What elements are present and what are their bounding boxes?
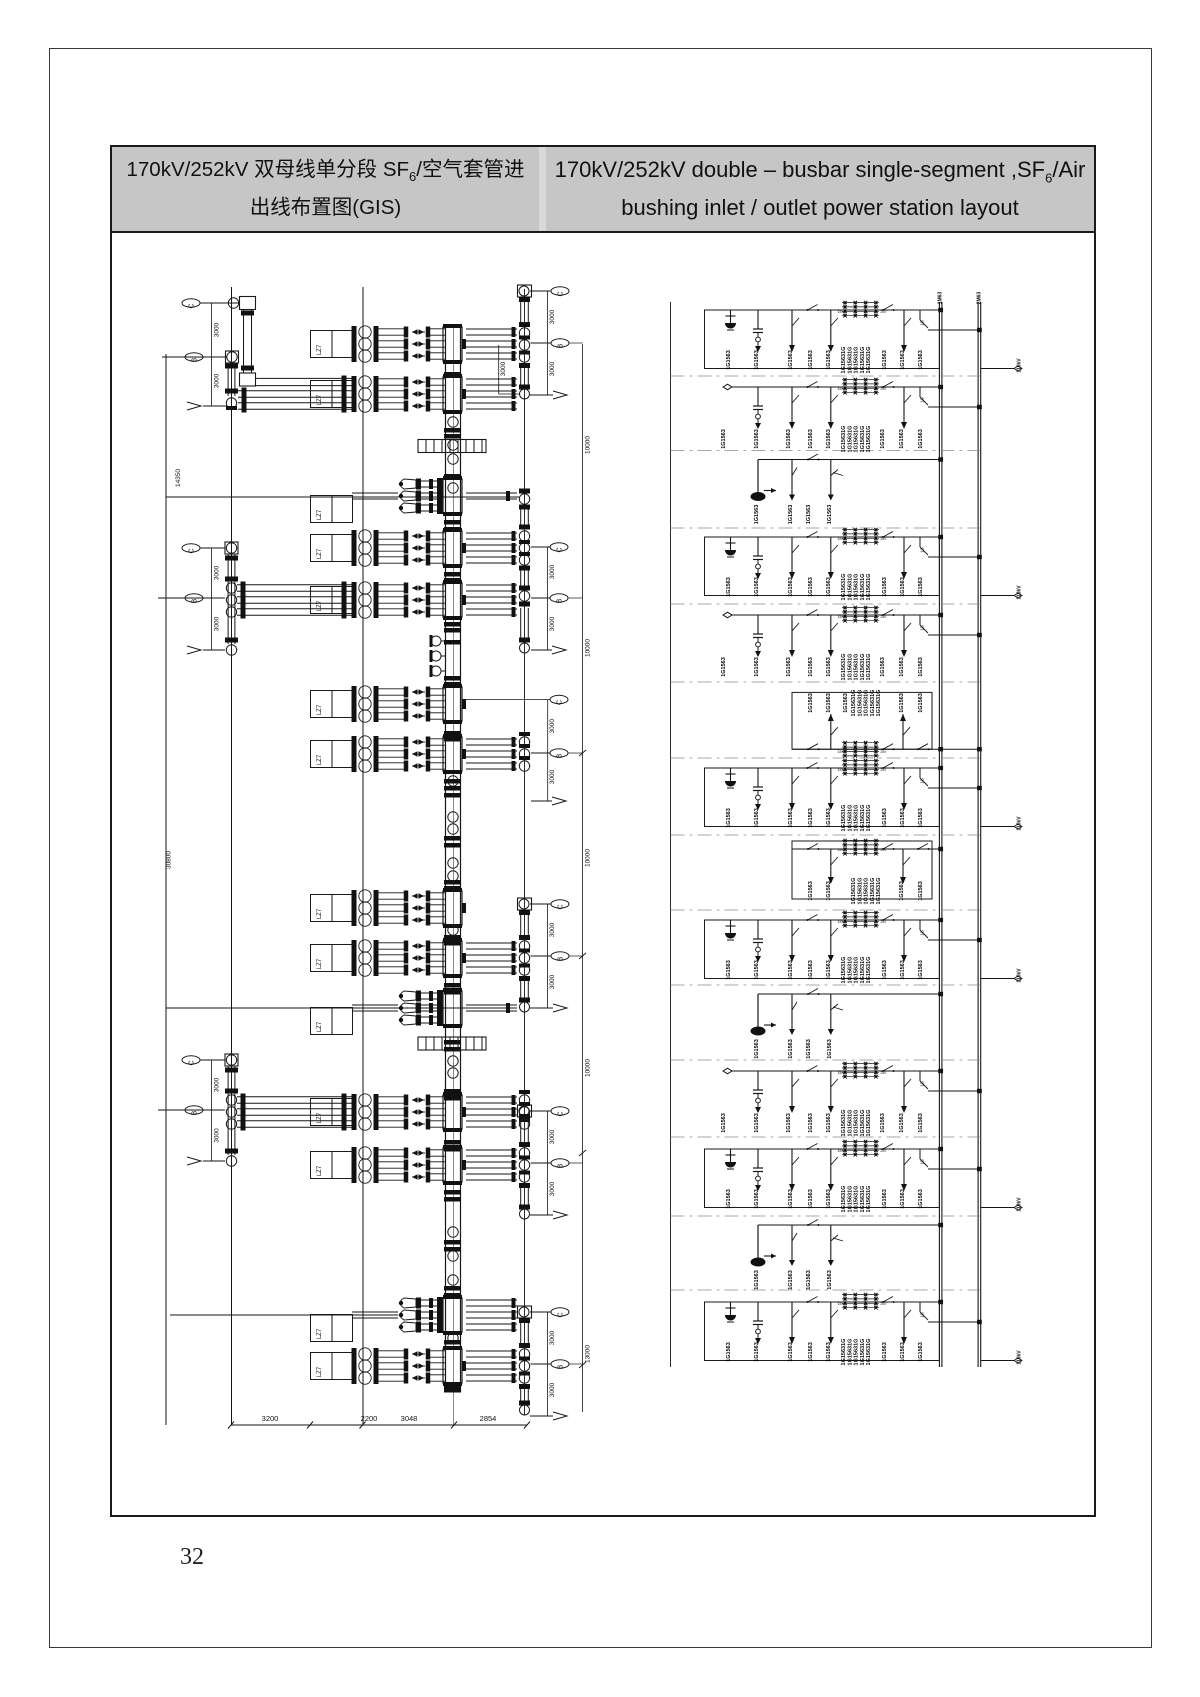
svg-text:1G15631G: 1G15631G bbox=[866, 654, 872, 681]
svg-text:1G15631G: 1G15631G bbox=[860, 1110, 866, 1137]
svg-text:1G1563: 1G1563 bbox=[754, 1342, 760, 1362]
svg-text:LZ7: LZ7 bbox=[317, 908, 323, 919]
svg-text:1G1563: 1G1563 bbox=[788, 808, 794, 828]
svg-text:1G1563: 1G1563 bbox=[754, 808, 760, 828]
svg-text:1M: 1M bbox=[837, 387, 842, 391]
svg-text:1G1563: 1G1563 bbox=[788, 1270, 794, 1290]
svg-text:1G1563: 1G1563 bbox=[754, 577, 760, 597]
svg-text:1G1563: 1G1563 bbox=[754, 1113, 760, 1133]
svg-text:1G1563: 1G1563 bbox=[826, 881, 832, 901]
svg-text:1G1563: 1G1563 bbox=[726, 577, 732, 597]
svg-text:LZ7: LZ7 bbox=[317, 1165, 323, 1176]
svg-text:1G1563: 1G1563 bbox=[899, 429, 905, 449]
svg-text:1G1563: 1G1563 bbox=[786, 429, 792, 449]
svg-text:1G1563: 1G1563 bbox=[880, 657, 886, 677]
svg-text:1G15631G: 1G15631G bbox=[841, 805, 847, 832]
svg-text:10000: 10000 bbox=[585, 1059, 592, 1077]
svg-text:LZ7: LZ7 bbox=[317, 958, 323, 969]
svg-text:30800: 30800 bbox=[166, 851, 173, 869]
svg-text:1G1563: 1G1563 bbox=[808, 881, 814, 901]
svg-text:110kV: 110kV bbox=[1017, 358, 1023, 373]
svg-text:1G1563: 1G1563 bbox=[882, 350, 888, 370]
svg-text:3000: 3000 bbox=[549, 361, 556, 376]
svg-text:LZ7: LZ7 bbox=[317, 1021, 323, 1032]
svg-text:1G15631G: 1G15631G bbox=[860, 957, 866, 984]
svg-text:1G15631G: 1G15631G bbox=[841, 654, 847, 681]
svg-text:1G15631G: 1G15631G bbox=[876, 878, 882, 905]
svg-text:1M: 1M bbox=[837, 615, 842, 619]
svg-text:LZ7: LZ7 bbox=[317, 509, 323, 520]
svg-text:3000: 3000 bbox=[549, 974, 556, 989]
svg-text:1G1563: 1G1563 bbox=[826, 808, 832, 828]
svg-text:1G1563: 1G1563 bbox=[826, 429, 832, 449]
svg-text:1G1563: 1G1563 bbox=[754, 1189, 760, 1209]
svg-text:1G1563: 1G1563 bbox=[808, 693, 814, 713]
svg-text:1G15631G: 1G15631G bbox=[854, 1186, 860, 1213]
svg-text:1G15631G: 1G15631G bbox=[847, 574, 853, 601]
svg-text:LZ7: LZ7 bbox=[317, 704, 323, 715]
svg-text:1G1563: 1G1563 bbox=[788, 505, 794, 525]
svg-text:3000: 3000 bbox=[549, 309, 556, 324]
svg-text:3000: 3000 bbox=[549, 564, 556, 579]
svg-text:B: B bbox=[558, 343, 565, 348]
svg-text:3000: 3000 bbox=[549, 1129, 556, 1144]
svg-text:1G1563: 1G1563 bbox=[808, 1113, 814, 1133]
svg-text:1G1563: 1G1563 bbox=[918, 657, 924, 677]
svg-text:1G1563: 1G1563 bbox=[788, 1189, 794, 1209]
svg-text:1G15631G: 1G15631G bbox=[860, 805, 866, 832]
svg-text:1G15631G: 1G15631G bbox=[841, 347, 847, 374]
svg-text:3000: 3000 bbox=[214, 616, 221, 631]
svg-text:1G1563: 1G1563 bbox=[882, 960, 888, 980]
svg-text:1G1563: 1G1563 bbox=[918, 808, 924, 828]
svg-text:1G1563: 1G1563 bbox=[754, 1039, 760, 1059]
svg-text:3000: 3000 bbox=[549, 769, 556, 784]
svg-text:1G15631G: 1G15631G bbox=[841, 1186, 847, 1213]
svg-text:1G1563: 1G1563 bbox=[726, 1342, 732, 1362]
svg-text:110kV: 110kV bbox=[1017, 1197, 1023, 1212]
svg-text:1G1563: 1G1563 bbox=[918, 350, 924, 370]
svg-text:1G1563: 1G1563 bbox=[721, 1113, 727, 1133]
svg-text:1G15631G: 1G15631G bbox=[841, 426, 847, 453]
svg-text:110kV: 110kV bbox=[1017, 816, 1023, 831]
svg-text:1G1563: 1G1563 bbox=[899, 657, 905, 677]
svg-text:1G15631G: 1G15631G bbox=[860, 654, 866, 681]
svg-text:1G15631G: 1G15631G bbox=[854, 654, 860, 681]
svg-text:C: C bbox=[557, 700, 564, 705]
svg-text:C: C bbox=[558, 291, 565, 296]
svg-text:1G1563: 1G1563 bbox=[788, 350, 794, 370]
svg-text:1G1563: 1G1563 bbox=[808, 429, 814, 449]
svg-text:1M63: 1M63 bbox=[938, 292, 944, 305]
svg-text:1G1563: 1G1563 bbox=[899, 1113, 905, 1133]
svg-text:1G1563: 1G1563 bbox=[788, 960, 794, 980]
svg-text:1G1563: 1G1563 bbox=[726, 350, 732, 370]
svg-text:13000: 13000 bbox=[585, 1345, 592, 1363]
svg-text:1G: 1G bbox=[920, 1312, 925, 1318]
svg-text:1G1563: 1G1563 bbox=[806, 1039, 812, 1059]
svg-text:1G: 1G bbox=[920, 320, 925, 326]
svg-text:1M: 1M bbox=[837, 920, 842, 924]
svg-text:B: B bbox=[192, 1110, 199, 1115]
svg-text:1G1563: 1G1563 bbox=[918, 1189, 924, 1209]
svg-text:1G1563: 1G1563 bbox=[726, 1189, 732, 1209]
svg-text:1G1563: 1G1563 bbox=[826, 1113, 832, 1133]
svg-text:1G1563: 1G1563 bbox=[826, 577, 832, 597]
svg-text:B: B bbox=[192, 598, 199, 603]
svg-text:1G1563: 1G1563 bbox=[826, 657, 832, 677]
svg-text:1G15631G: 1G15631G bbox=[841, 957, 847, 984]
svg-text:1G1563: 1G1563 bbox=[826, 1342, 832, 1362]
svg-text:1G1563: 1G1563 bbox=[786, 1113, 792, 1133]
svg-text:1G15631G: 1G15631G bbox=[860, 1339, 866, 1366]
svg-text:1G1563: 1G1563 bbox=[827, 1270, 833, 1290]
svg-text:1G15631G: 1G15631G bbox=[857, 690, 863, 717]
svg-text:1G15631G: 1G15631G bbox=[860, 574, 866, 601]
svg-text:1G1563: 1G1563 bbox=[899, 693, 905, 713]
svg-text:1G15631G: 1G15631G bbox=[876, 690, 882, 717]
svg-text:1G1563: 1G1563 bbox=[726, 808, 732, 828]
svg-text:3000: 3000 bbox=[549, 922, 556, 937]
svg-text:1G15631G: 1G15631G bbox=[851, 878, 857, 905]
svg-text:1G1563: 1G1563 bbox=[754, 657, 760, 677]
svg-text:1M: 1M bbox=[837, 1071, 842, 1075]
svg-text:1G1563: 1G1563 bbox=[827, 505, 833, 525]
svg-text:1G1563: 1G1563 bbox=[880, 429, 886, 449]
svg-text:1G15631G: 1G15631G bbox=[866, 347, 872, 374]
svg-text:1G15631G: 1G15631G bbox=[860, 347, 866, 374]
svg-text:1G15631G: 1G15631G bbox=[870, 878, 876, 905]
svg-text:1G1563: 1G1563 bbox=[880, 1113, 886, 1133]
svg-text:B: B bbox=[557, 598, 564, 603]
svg-text:1G1563: 1G1563 bbox=[808, 657, 814, 677]
svg-text:1G1563: 1G1563 bbox=[806, 505, 812, 525]
svg-text:1G: 1G bbox=[920, 397, 925, 403]
svg-text:1G1563: 1G1563 bbox=[726, 960, 732, 980]
svg-text:1M: 1M bbox=[837, 310, 842, 314]
svg-text:10000: 10000 bbox=[585, 436, 592, 454]
svg-text:1G15631G: 1G15631G bbox=[854, 1339, 860, 1366]
svg-text:1G15631G: 1G15631G bbox=[854, 426, 860, 453]
svg-text:1G1563: 1G1563 bbox=[808, 1189, 814, 1209]
svg-text:1M: 1M bbox=[837, 537, 842, 541]
svg-text:1G: 1G bbox=[920, 1081, 925, 1087]
svg-text:14350: 14350 bbox=[175, 469, 182, 487]
svg-text:2200: 2200 bbox=[361, 1414, 378, 1423]
svg-text:1G1563: 1G1563 bbox=[754, 505, 760, 525]
svg-text:1G1563: 1G1563 bbox=[808, 577, 814, 597]
svg-text:B: B bbox=[192, 357, 199, 362]
svg-text:1G1563: 1G1563 bbox=[843, 693, 849, 713]
svg-text:2854: 2854 bbox=[480, 1414, 497, 1423]
svg-text:1G1563: 1G1563 bbox=[918, 429, 924, 449]
svg-text:1G15631G: 1G15631G bbox=[860, 426, 866, 453]
svg-text:3000: 3000 bbox=[549, 1382, 556, 1397]
svg-text:B: B bbox=[558, 1364, 565, 1369]
svg-text:110kV: 110kV bbox=[1017, 585, 1023, 600]
svg-text:1G15631G: 1G15631G bbox=[847, 805, 853, 832]
svg-text:1G15631G: 1G15631G bbox=[857, 878, 863, 905]
svg-text:C: C bbox=[557, 547, 564, 552]
svg-text:3200: 3200 bbox=[262, 1414, 279, 1423]
svg-text:1G15631G: 1G15631G bbox=[841, 574, 847, 601]
svg-text:1G: 1G bbox=[920, 1159, 925, 1165]
svg-text:1G15631G: 1G15631G bbox=[847, 957, 853, 984]
svg-text:10000: 10000 bbox=[585, 639, 592, 657]
svg-text:1G15631G: 1G15631G bbox=[870, 690, 876, 717]
svg-text:LZ7: LZ7 bbox=[317, 754, 323, 765]
svg-text:C: C bbox=[189, 1060, 196, 1065]
svg-text:1G1563: 1G1563 bbox=[882, 808, 888, 828]
svg-text:1G15631G: 1G15631G bbox=[866, 1339, 872, 1366]
svg-text:1G1563: 1G1563 bbox=[808, 350, 814, 370]
svg-text:1G15631G: 1G15631G bbox=[847, 1186, 853, 1213]
svg-text:B: B bbox=[558, 1163, 565, 1168]
svg-text:2M: 2M bbox=[880, 750, 885, 754]
svg-text:1G1563: 1G1563 bbox=[918, 960, 924, 980]
svg-text:1G1563: 1G1563 bbox=[826, 350, 832, 370]
svg-text:C: C bbox=[558, 1111, 565, 1116]
svg-text:1G1563: 1G1563 bbox=[900, 577, 906, 597]
svg-text:3000: 3000 bbox=[214, 1077, 221, 1092]
svg-text:1G1563: 1G1563 bbox=[788, 1039, 794, 1059]
svg-text:1G15631G: 1G15631G bbox=[854, 805, 860, 832]
svg-text:3000: 3000 bbox=[549, 1181, 556, 1196]
svg-text:1G1563: 1G1563 bbox=[882, 1189, 888, 1209]
svg-text:1G15631G: 1G15631G bbox=[864, 878, 870, 905]
svg-text:2M63: 2M63 bbox=[977, 292, 983, 305]
svg-text:LZ7: LZ7 bbox=[317, 1112, 323, 1123]
svg-text:1G15631G: 1G15631G bbox=[866, 957, 872, 984]
svg-text:C: C bbox=[189, 303, 196, 308]
svg-text:1G15631G: 1G15631G bbox=[860, 1186, 866, 1213]
svg-text:1G1563: 1G1563 bbox=[754, 960, 760, 980]
svg-text:1G1563: 1G1563 bbox=[754, 429, 760, 449]
svg-text:1G: 1G bbox=[920, 778, 925, 784]
svg-text:3000: 3000 bbox=[500, 361, 507, 376]
svg-text:1G15631G: 1G15631G bbox=[866, 426, 872, 453]
svg-text:1G1563: 1G1563 bbox=[808, 1342, 814, 1362]
svg-text:3000: 3000 bbox=[549, 719, 556, 734]
svg-text:3000: 3000 bbox=[214, 565, 221, 580]
svg-text:1M: 1M bbox=[837, 750, 842, 754]
svg-text:1G: 1G bbox=[920, 625, 925, 631]
svg-text:1G1563: 1G1563 bbox=[882, 1342, 888, 1362]
svg-text:LZ7: LZ7 bbox=[317, 548, 323, 559]
svg-text:C: C bbox=[558, 904, 565, 909]
svg-text:3048: 3048 bbox=[401, 1414, 418, 1423]
svg-text:3000: 3000 bbox=[549, 616, 556, 631]
svg-text:1G15631G: 1G15631G bbox=[854, 957, 860, 984]
svg-text:1G1563: 1G1563 bbox=[899, 881, 905, 901]
svg-text:LZ7: LZ7 bbox=[317, 1366, 323, 1377]
svg-text:1G1563: 1G1563 bbox=[918, 881, 924, 901]
svg-text:1G1563: 1G1563 bbox=[918, 1342, 924, 1362]
svg-text:B: B bbox=[558, 956, 565, 961]
svg-text:1G1563: 1G1563 bbox=[826, 1189, 832, 1209]
svg-text:1G15631G: 1G15631G bbox=[847, 1339, 853, 1366]
svg-text:1G1563: 1G1563 bbox=[721, 657, 727, 677]
svg-text:1G1563: 1G1563 bbox=[808, 808, 814, 828]
svg-text:1G1563: 1G1563 bbox=[882, 577, 888, 597]
svg-text:1G15631G: 1G15631G bbox=[847, 426, 853, 453]
svg-text:1G1563: 1G1563 bbox=[754, 1270, 760, 1290]
svg-text:1G15631G: 1G15631G bbox=[841, 1339, 847, 1366]
svg-text:C: C bbox=[189, 548, 196, 553]
svg-text:3000: 3000 bbox=[214, 1128, 221, 1143]
svg-text:10000: 10000 bbox=[585, 849, 592, 867]
svg-text:1G1563: 1G1563 bbox=[721, 429, 727, 449]
svg-text:1G15631G: 1G15631G bbox=[854, 574, 860, 601]
svg-text:1G: 1G bbox=[920, 547, 925, 553]
svg-text:3000: 3000 bbox=[214, 373, 221, 388]
svg-text:1G1563: 1G1563 bbox=[808, 960, 814, 980]
svg-text:1G15631G: 1G15631G bbox=[866, 574, 872, 601]
svg-text:1G15631G: 1G15631G bbox=[851, 690, 857, 717]
svg-text:1G: 1G bbox=[920, 930, 925, 936]
svg-text:1G15631G: 1G15631G bbox=[847, 1110, 853, 1137]
svg-text:1G1563: 1G1563 bbox=[900, 350, 906, 370]
svg-text:LZ7: LZ7 bbox=[317, 394, 323, 405]
svg-text:1G1563: 1G1563 bbox=[826, 960, 832, 980]
svg-text:1G1563: 1G1563 bbox=[754, 350, 760, 370]
svg-text:1M: 1M bbox=[837, 768, 842, 772]
svg-text:1G1563: 1G1563 bbox=[827, 1039, 833, 1059]
svg-text:1G1563: 1G1563 bbox=[918, 577, 924, 597]
svg-text:1G1563: 1G1563 bbox=[826, 693, 832, 713]
svg-text:1G1563: 1G1563 bbox=[918, 1113, 924, 1133]
svg-text:LZ7: LZ7 bbox=[317, 1328, 323, 1339]
svg-text:1G15631G: 1G15631G bbox=[854, 347, 860, 374]
svg-text:1G15631G: 1G15631G bbox=[847, 347, 853, 374]
svg-text:1G15631G: 1G15631G bbox=[866, 1186, 872, 1213]
svg-text:1G15631G: 1G15631G bbox=[864, 690, 870, 717]
svg-text:1M: 1M bbox=[837, 848, 842, 852]
svg-text:1G1563: 1G1563 bbox=[918, 693, 924, 713]
svg-text:1G1563: 1G1563 bbox=[786, 657, 792, 677]
svg-text:1M: 1M bbox=[837, 1302, 842, 1306]
svg-text:110kV: 110kV bbox=[1017, 968, 1023, 983]
svg-text:1G15631G: 1G15631G bbox=[854, 1110, 860, 1137]
svg-text:1G1563: 1G1563 bbox=[788, 1342, 794, 1362]
svg-text:1G15631G: 1G15631G bbox=[866, 1110, 872, 1137]
svg-text:LZ7: LZ7 bbox=[317, 344, 323, 355]
svg-text:1G1563: 1G1563 bbox=[788, 577, 794, 597]
svg-text:1G1563: 1G1563 bbox=[900, 960, 906, 980]
svg-text:3000: 3000 bbox=[549, 1330, 556, 1345]
svg-text:1G1563: 1G1563 bbox=[806, 1270, 812, 1290]
svg-text:1G1563: 1G1563 bbox=[900, 1189, 906, 1209]
svg-text:LZ7: LZ7 bbox=[317, 600, 323, 611]
svg-text:3000: 3000 bbox=[214, 322, 221, 337]
svg-text:C: C bbox=[558, 1312, 565, 1317]
svg-text:1G15631G: 1G15631G bbox=[866, 805, 872, 832]
svg-text:1M: 1M bbox=[837, 1149, 842, 1153]
svg-text:1G15631G: 1G15631G bbox=[841, 1110, 847, 1137]
svg-text:110kV: 110kV bbox=[1017, 1350, 1023, 1365]
svg-text:1G1563: 1G1563 bbox=[900, 1342, 906, 1362]
svg-text:B: B bbox=[557, 753, 564, 758]
svg-text:1G15631G: 1G15631G bbox=[847, 654, 853, 681]
svg-text:1G1563: 1G1563 bbox=[900, 808, 906, 828]
